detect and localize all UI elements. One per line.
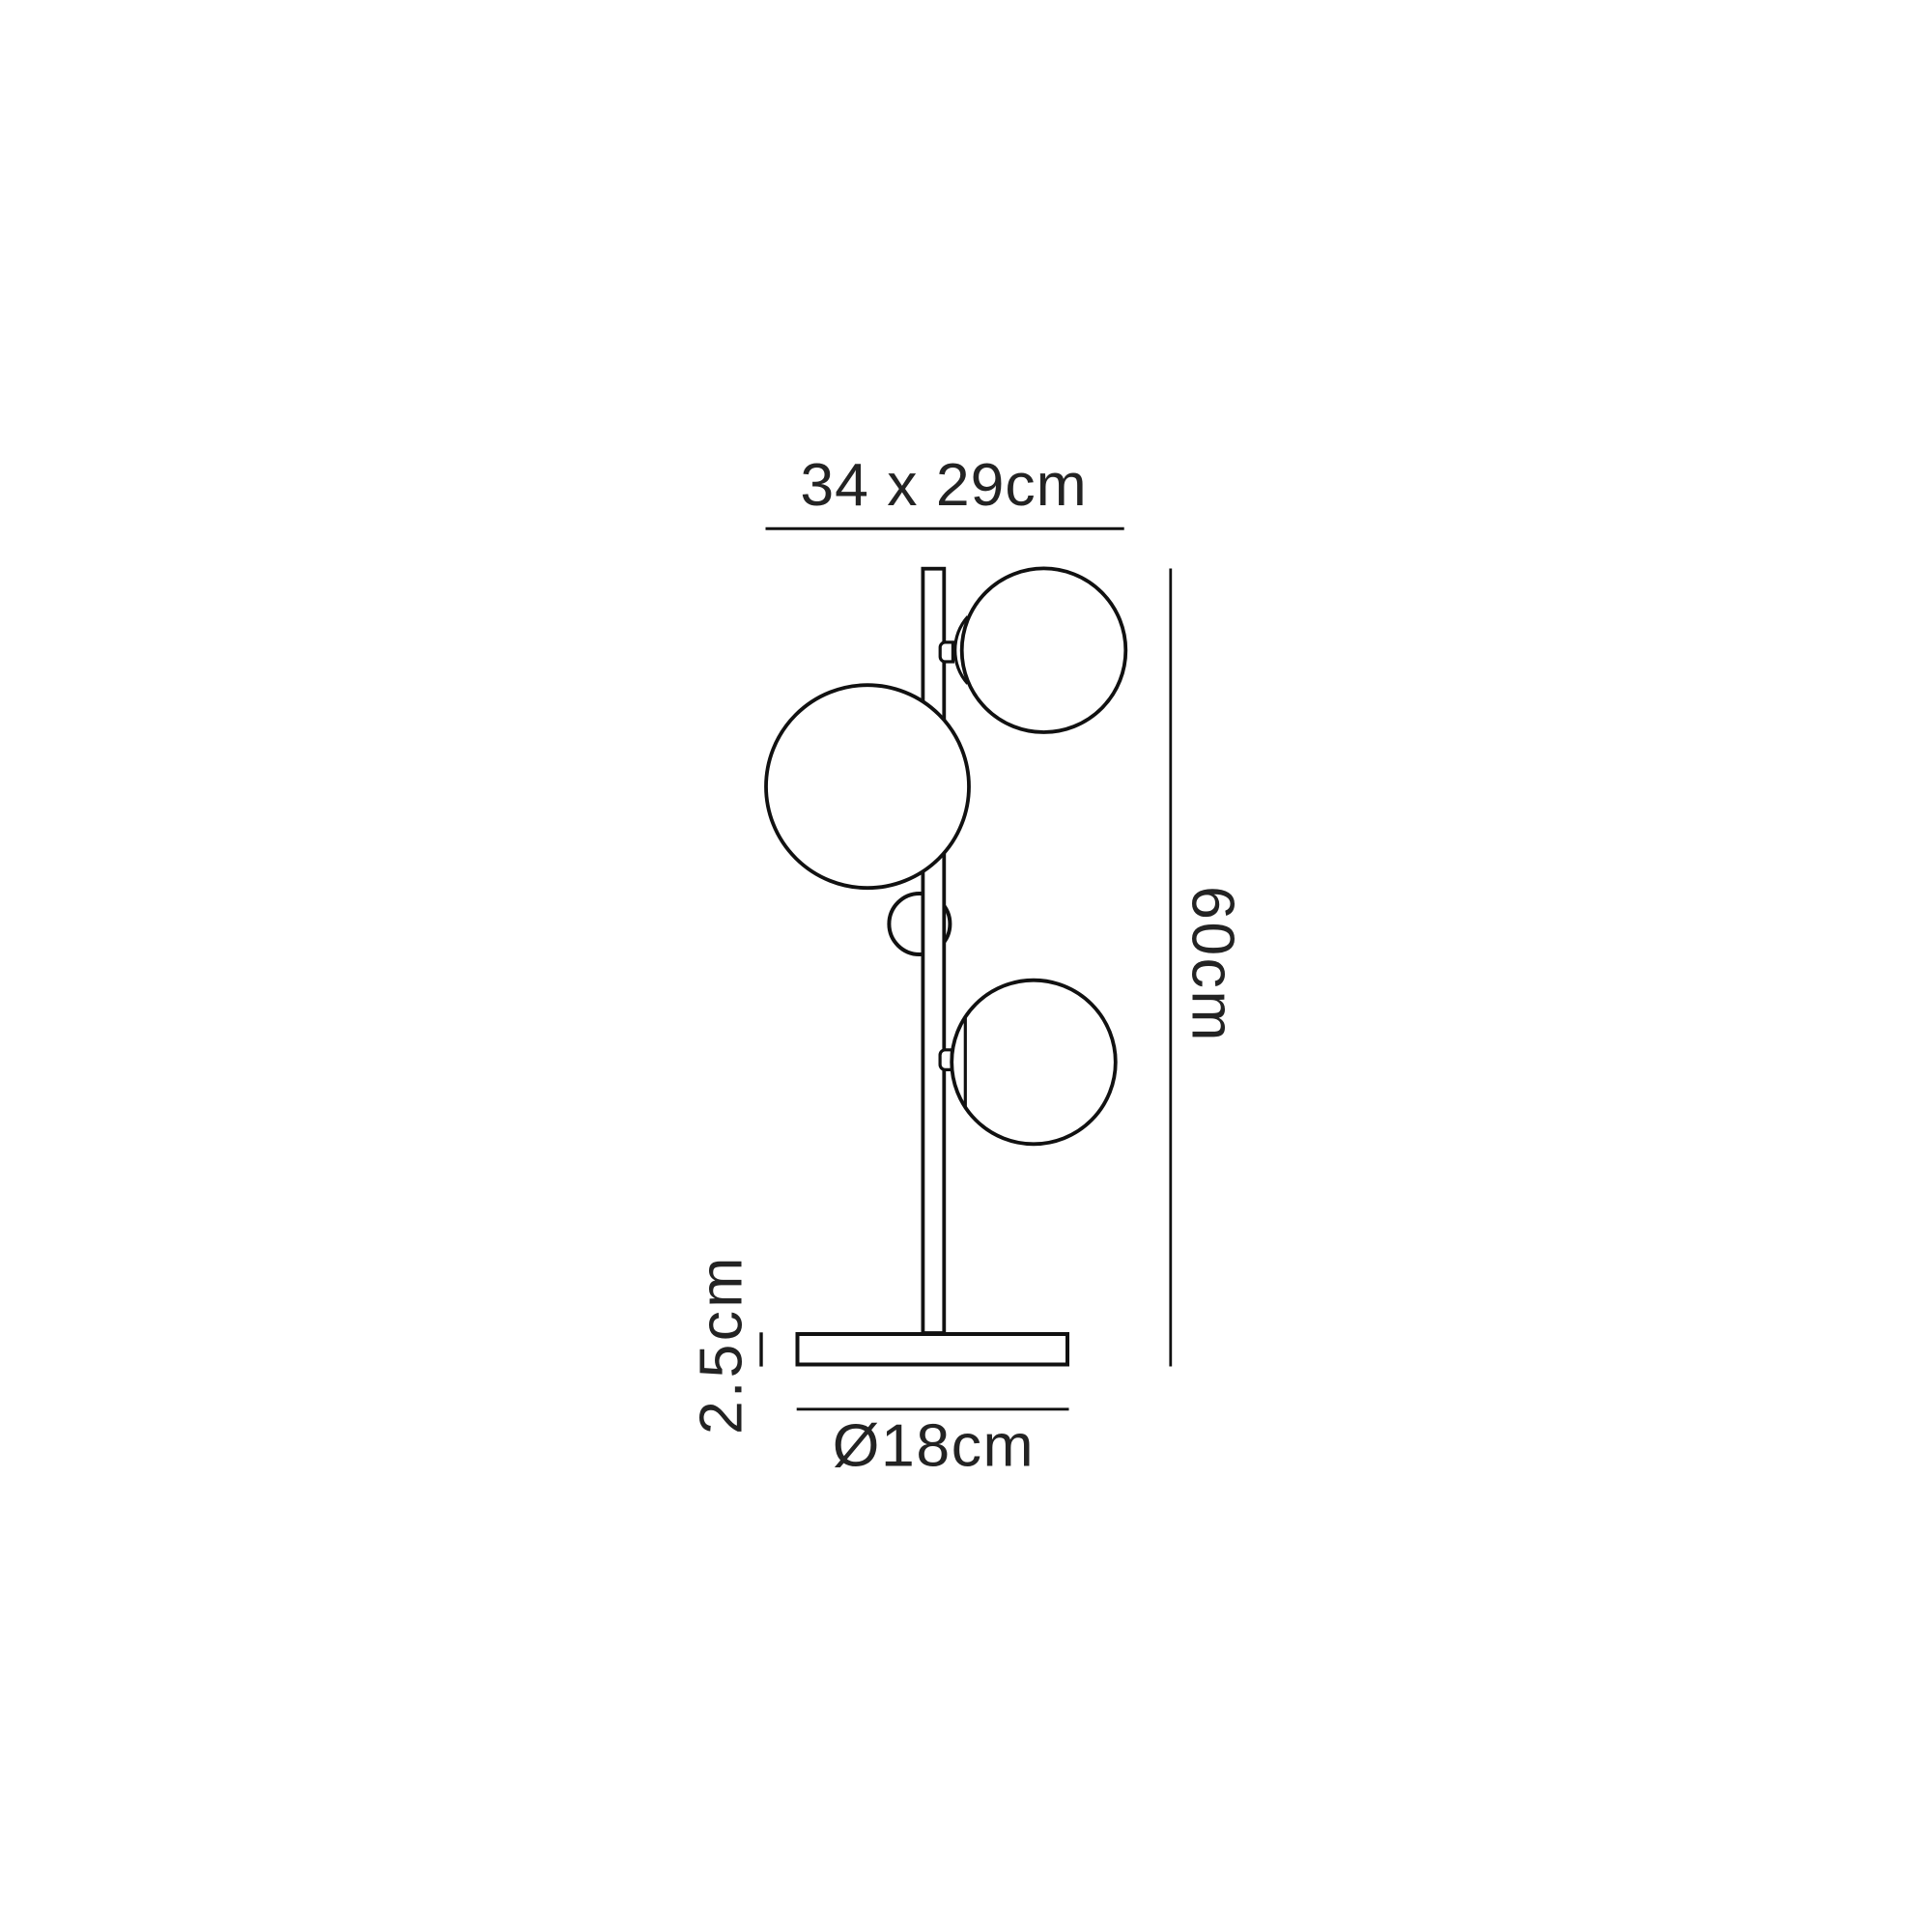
- svg-text:34 x 29cm: 34 x 29cm: [800, 451, 1087, 519]
- svg-text:2.5cm: 2.5cm: [688, 1254, 755, 1435]
- svg-text:60cm: 60cm: [1179, 886, 1247, 1043]
- svg-text:Ø18cm: Ø18cm: [833, 1412, 1035, 1480]
